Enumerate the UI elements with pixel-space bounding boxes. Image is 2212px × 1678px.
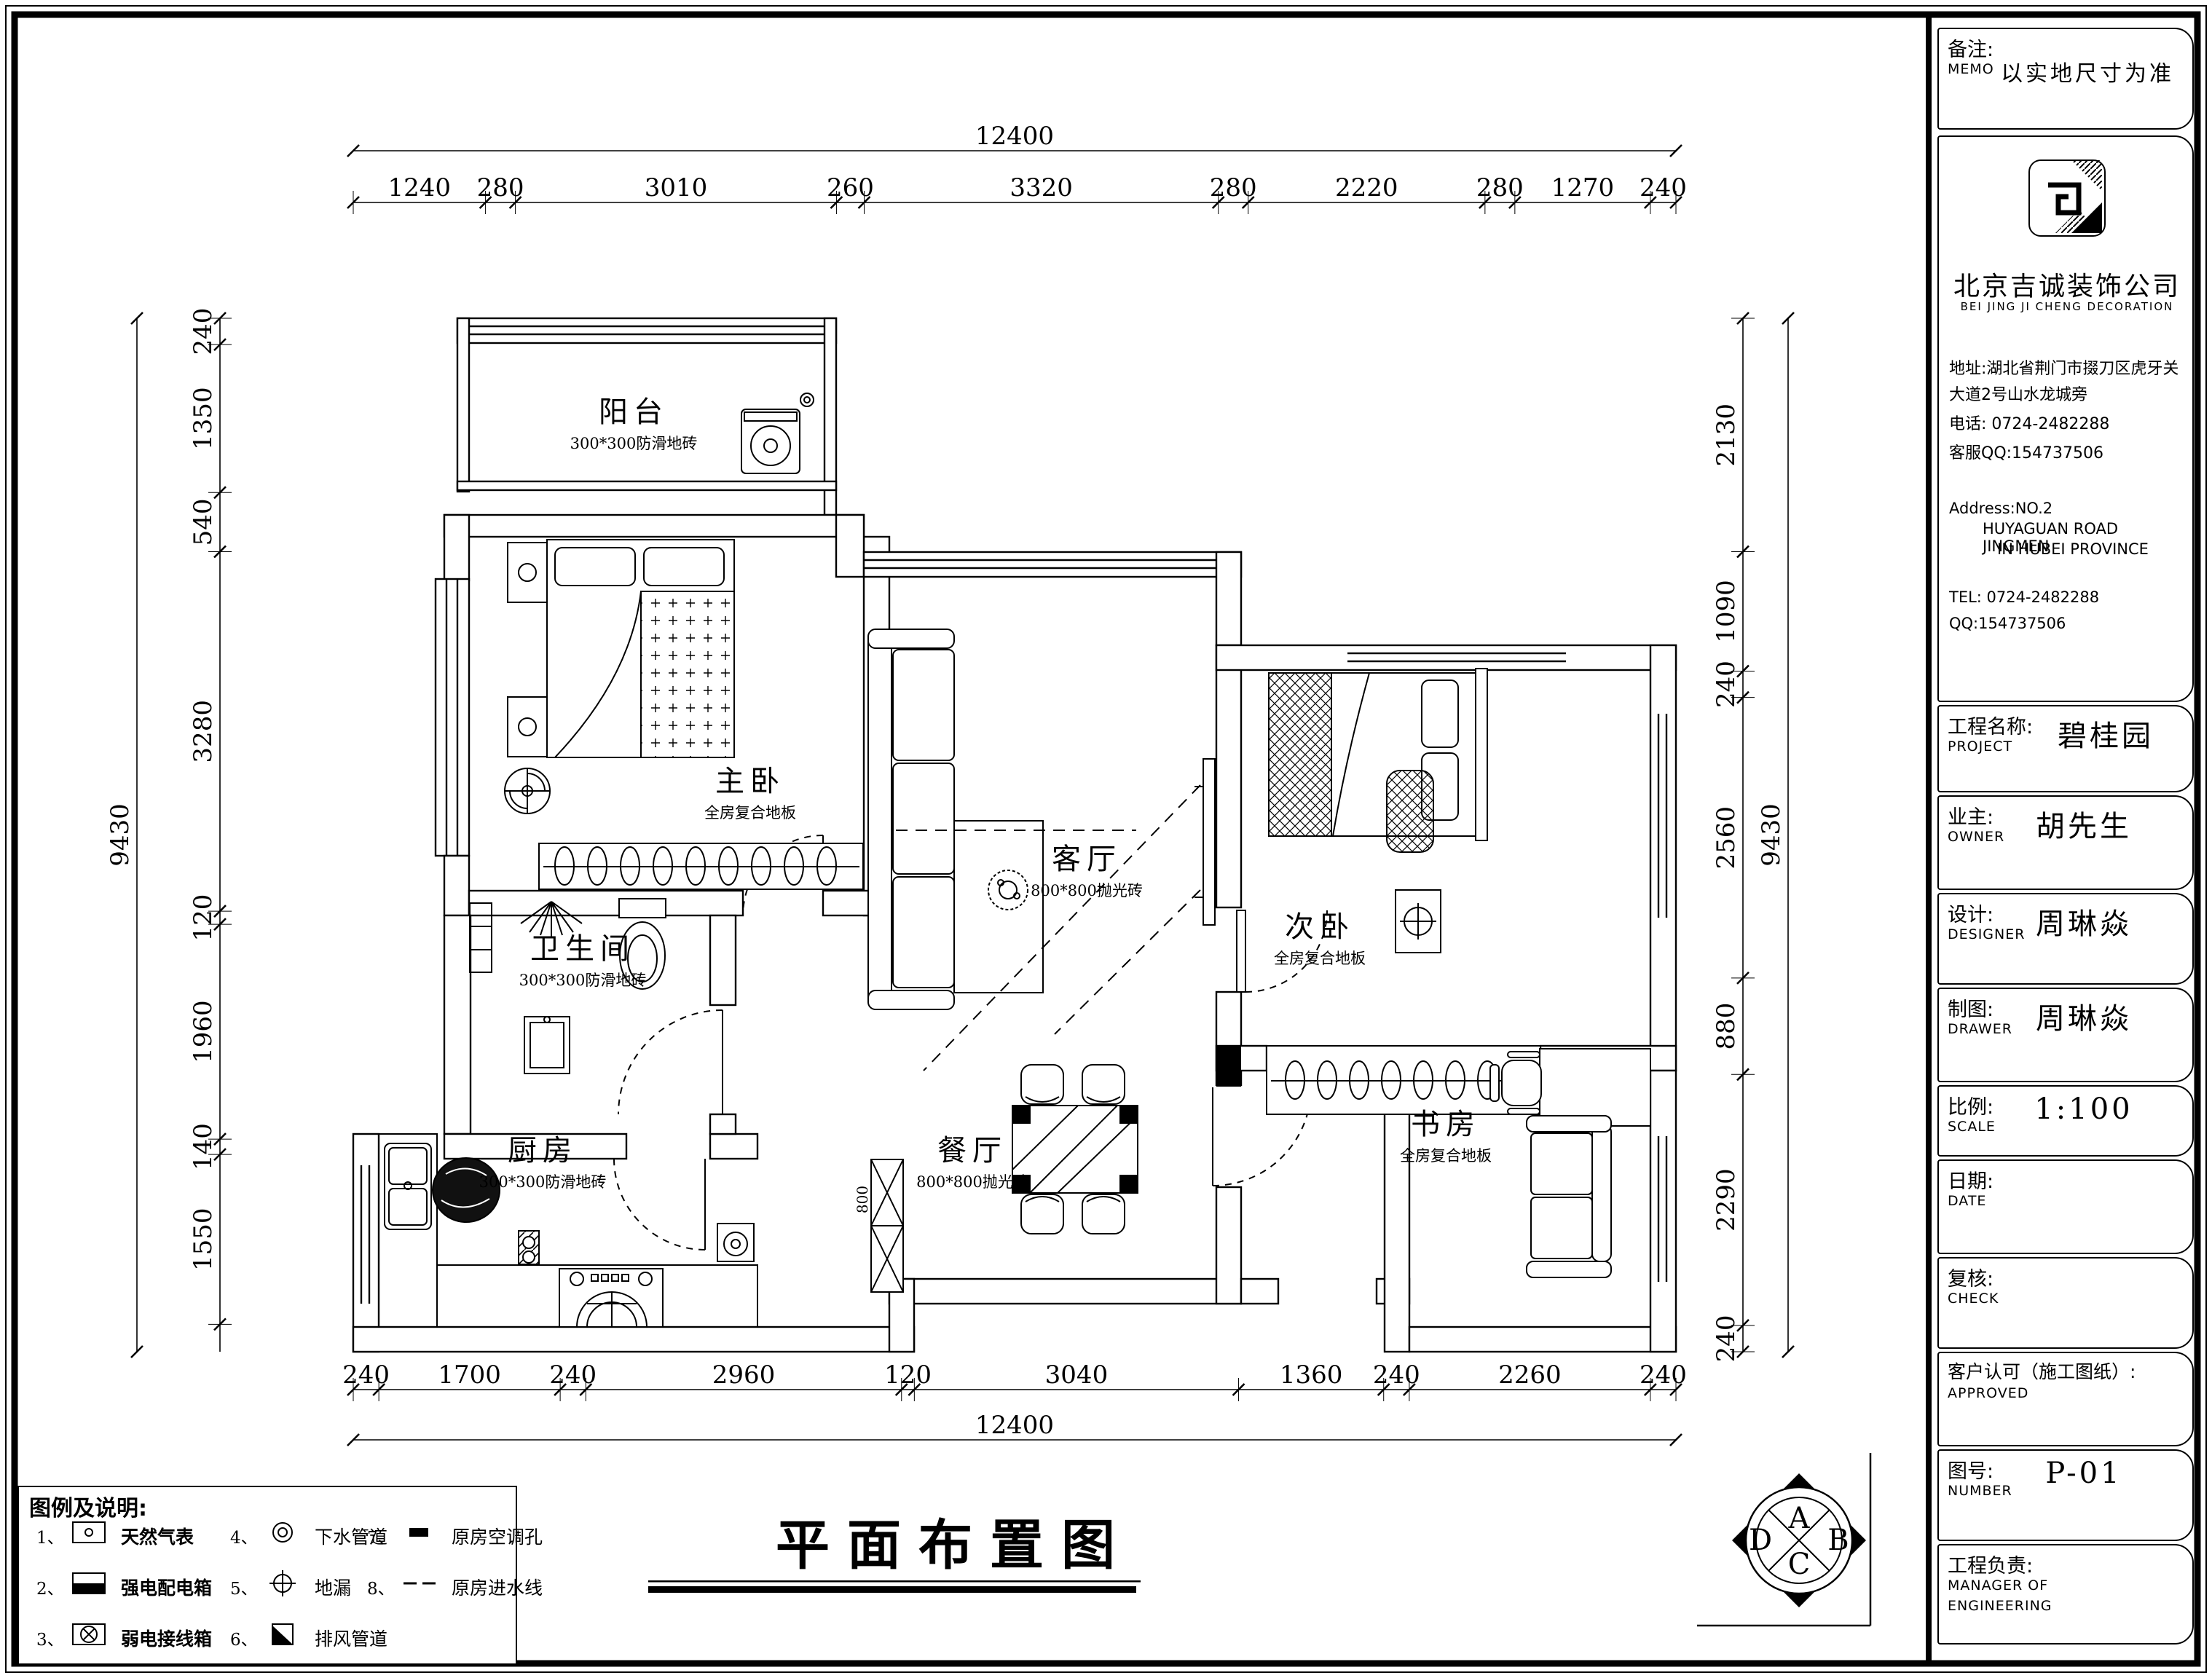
room-floor-note: 300*300防滑地砖 bbox=[519, 969, 647, 990]
drawer-box: 制图: DRAWER 周琳焱 bbox=[1937, 988, 2194, 1082]
company-address-1: 地址:湖北省荆门市掇刀区虎牙关 bbox=[1949, 355, 2185, 379]
scale-box: 比例: SCALE 1:100 bbox=[1937, 1085, 2194, 1157]
company-name-en: BEI JING JI CHENG DECORATION bbox=[1949, 300, 2185, 313]
dining-chair bbox=[1021, 1194, 1063, 1234]
kitchen-sink bbox=[385, 1143, 431, 1229]
legend-item-label: 原房空调孔 bbox=[452, 1523, 543, 1549]
designer-value: 周琳焱 bbox=[1990, 900, 2178, 942]
scale-label: 比例: bbox=[1948, 1091, 1993, 1119]
appliance bbox=[717, 1224, 754, 1261]
legend-item-number: 1、 bbox=[36, 1524, 64, 1548]
company-tel-en: TEL: 0724-2482288 bbox=[1949, 588, 2185, 606]
weak-current-box-icon bbox=[68, 1621, 109, 1650]
dim-label: 120 bbox=[884, 1360, 932, 1390]
legend-item-number: 7、 bbox=[367, 1524, 395, 1548]
legend-item-number: 3、 bbox=[36, 1626, 64, 1650]
dim-label: 2960 bbox=[712, 1360, 776, 1390]
compass-letter-b: B bbox=[1827, 1524, 1849, 1557]
room-label-bathroom: 卫生间 300*300防滑地砖 bbox=[519, 925, 647, 990]
drawer-label: 制图: bbox=[1948, 993, 1993, 1022]
number-box: 图号: NUMBER P-01 bbox=[1937, 1449, 2194, 1541]
potted-plant bbox=[988, 870, 1028, 910]
tv-panel bbox=[1194, 759, 1215, 925]
exhaust-fan-symbol bbox=[505, 768, 550, 814]
dim-label: 880 bbox=[1712, 1003, 1741, 1050]
dim-label: 140 bbox=[189, 1123, 218, 1170]
memo-box: 备注: MEMO 以实地尺寸为准 bbox=[1937, 28, 2194, 130]
dim-label: 260 bbox=[827, 173, 874, 202]
drawing-title: 平面布置图 bbox=[728, 1502, 1180, 1580]
room-name: 厨房 bbox=[479, 1127, 607, 1169]
memo-label-en: MEMO bbox=[1948, 61, 1994, 77]
nightstand bbox=[508, 543, 547, 602]
owner-value: 胡先生 bbox=[1990, 803, 2178, 845]
legend-item-label: 排风管道 bbox=[315, 1625, 387, 1651]
title-underline bbox=[648, 1580, 1141, 1593]
dim-label: 240 bbox=[1640, 173, 1687, 202]
room-label-dining: 餐厅 800*800抛光砖 bbox=[916, 1127, 1028, 1192]
exhaust-duct-icon bbox=[262, 1621, 303, 1650]
dim-label: 2560 bbox=[1712, 806, 1741, 870]
manager-label-en2: ENGINEERING bbox=[1948, 1598, 2052, 1614]
number-label: 图号: bbox=[1948, 1455, 1993, 1484]
manager-label: 工程负责: bbox=[1948, 1550, 2033, 1578]
approved-box: 客户认可（施工图纸）: APPROVED bbox=[1937, 1352, 2194, 1446]
memo-value: 以实地尺寸为准 bbox=[1997, 55, 2178, 87]
dining-chair bbox=[1082, 1194, 1125, 1234]
dim-label: 120 bbox=[189, 894, 218, 942]
floor-drain-icon bbox=[262, 1570, 303, 1599]
company-box: 北京吉诚装饰公司 BEI JING JI CHENG DECORATION 地址… bbox=[1937, 135, 2194, 702]
dim-label: 1270 bbox=[1551, 173, 1615, 202]
dim-label: 2260 bbox=[1498, 1360, 1562, 1390]
dim-label: 9430 bbox=[106, 803, 135, 867]
check-label: 复核: bbox=[1948, 1263, 1993, 1291]
check-label-en: CHECK bbox=[1948, 1291, 1999, 1307]
dining-table bbox=[1012, 1106, 1138, 1193]
legend-item-label: 原房进水线 bbox=[452, 1574, 543, 1600]
washing-machine bbox=[741, 409, 800, 473]
room-floor-note: 全房复合地板 bbox=[1274, 947, 1366, 969]
scale-label-en: SCALE bbox=[1948, 1119, 1996, 1135]
room-name: 阳台 bbox=[570, 388, 698, 430]
room-name: 卫生间 bbox=[519, 925, 647, 967]
owner-label: 业主: bbox=[1948, 801, 1993, 830]
manager-label-en: MANAGER OF bbox=[1948, 1577, 2048, 1594]
company-phone: 电话: 0724-2482288 bbox=[1949, 411, 2185, 434]
dim-label: 12400 bbox=[975, 1411, 1054, 1440]
company-logo-icon bbox=[2026, 157, 2108, 242]
number-value: P-01 bbox=[1990, 1457, 2178, 1490]
exhaust-duct-symbol bbox=[519, 1231, 539, 1264]
wardrobe bbox=[539, 843, 863, 889]
dim-label: 540 bbox=[189, 498, 218, 545]
company-name: 北京吉诚装饰公司 bbox=[1949, 265, 2185, 303]
nightstand bbox=[1396, 890, 1441, 953]
dim-label: 240 bbox=[1640, 1360, 1687, 1390]
room-label-kitchen: 厨房 300*300防滑地砖 bbox=[479, 1127, 607, 1192]
desk bbox=[1540, 1049, 1650, 1126]
legend-item-number: 5、 bbox=[230, 1575, 258, 1599]
legend-item-label: 地漏 bbox=[315, 1574, 351, 1600]
dim-label: 240 bbox=[549, 1360, 597, 1390]
room-floor-note: 300*300防滑地砖 bbox=[479, 1170, 607, 1192]
dim-label: 12400 bbox=[975, 122, 1054, 151]
legend-item-label: 天然气表 bbox=[121, 1523, 194, 1549]
second-bed bbox=[1269, 669, 1487, 840]
legend-item-number: 6、 bbox=[230, 1626, 258, 1650]
gas-stove bbox=[559, 1269, 663, 1327]
power-distribution-box-icon bbox=[68, 1570, 109, 1599]
dim-label: 9430 bbox=[1757, 803, 1786, 867]
bathroom-sink bbox=[524, 1017, 570, 1074]
company-qq: 客服QQ:154737506 bbox=[1949, 440, 2185, 463]
room-label-balcony: 阳台 300*300防滑地砖 bbox=[570, 388, 698, 454]
room-name: 书房 bbox=[1400, 1100, 1492, 1143]
dim-label: 280 bbox=[477, 173, 524, 202]
legend-item-number: 4、 bbox=[230, 1524, 258, 1548]
dim-label: 240 bbox=[1712, 1315, 1741, 1362]
dim-label: 240 bbox=[1373, 1360, 1420, 1390]
compass-letter-a: A bbox=[1789, 1502, 1810, 1535]
dim-label: 1700 bbox=[438, 1360, 501, 1390]
dim-label: 280 bbox=[1476, 173, 1524, 202]
room-floor-note: 全房复合地板 bbox=[1400, 1144, 1492, 1166]
owner-box: 业主: OWNER 胡先生 bbox=[1937, 795, 2194, 890]
project-label-en: PROJECT bbox=[1948, 738, 2012, 755]
dim-label: 280 bbox=[1210, 173, 1257, 202]
dim-label: 3280 bbox=[189, 700, 218, 763]
dim-label: 2290 bbox=[1712, 1168, 1741, 1232]
dim-label: 3040 bbox=[1045, 1360, 1109, 1390]
dining-chair bbox=[1021, 1065, 1063, 1104]
dim-label: 3320 bbox=[1009, 173, 1073, 202]
dim-label: 1960 bbox=[189, 1000, 218, 1063]
date-label: 日期: bbox=[1948, 1165, 1993, 1194]
approved-label: 客户认可（施工图纸）: bbox=[1948, 1358, 2136, 1384]
legend-item-label: 强电配电箱 bbox=[121, 1574, 212, 1600]
kitchen-door bbox=[614, 1159, 705, 1250]
project-label: 工程名称: bbox=[1948, 711, 2033, 739]
manager-box: 工程负责: MANAGER OF ENGINEERING bbox=[1937, 1544, 2194, 1644]
room-floor-note: 300*300防滑地砖 bbox=[570, 432, 698, 454]
check-box: 复核: CHECK bbox=[1937, 1257, 2194, 1349]
company-qq-en: QQ:154737506 bbox=[1949, 615, 2185, 632]
room-label-master: 主卧 全房复合地板 bbox=[704, 757, 796, 823]
room-label-study: 书房 全房复合地板 bbox=[1400, 1100, 1492, 1166]
dim-label: 3010 bbox=[645, 173, 708, 202]
room-floor-note: 800*800抛光砖 bbox=[916, 1170, 1028, 1192]
room-floor-note: 全房复合地板 bbox=[704, 801, 796, 823]
room-floor-note: 800*800抛光砖 bbox=[1031, 879, 1143, 901]
master-bed bbox=[547, 540, 734, 757]
approved-label-en: APPROVED bbox=[1948, 1385, 2028, 1401]
gas-meter-icon bbox=[68, 1519, 109, 1548]
designer-box: 设计: DESIGNER 周琳焱 bbox=[1937, 893, 2194, 985]
sofa bbox=[868, 629, 954, 1009]
designer-label: 设计: bbox=[1948, 899, 1993, 927]
memo-label: 备注: bbox=[1948, 34, 1993, 62]
nightstand bbox=[508, 697, 547, 757]
legend-item-number: 8、 bbox=[367, 1575, 395, 1599]
compass-letter-c: C bbox=[1788, 1548, 1811, 1581]
cabinet-width-note: 800 bbox=[854, 1186, 871, 1213]
study-sofa bbox=[1527, 1116, 1611, 1277]
dim-label: 240 bbox=[342, 1360, 390, 1390]
dim-label: 1090 bbox=[1712, 580, 1741, 643]
room-name: 主卧 bbox=[704, 757, 796, 800]
drain-pipe-icon bbox=[262, 1519, 303, 1548]
dining-chair bbox=[1082, 1065, 1125, 1104]
ac-hole-icon bbox=[399, 1519, 440, 1548]
bedside-rug bbox=[1387, 771, 1433, 852]
company-address-en-1: Address:NO.2 bbox=[1949, 500, 2185, 517]
dim-label: 2220 bbox=[1335, 173, 1398, 202]
date-box: 日期: DATE bbox=[1937, 1159, 2194, 1254]
room-label-second-bedroom: 次卧 全房复合地板 bbox=[1274, 903, 1366, 969]
dim-label: 1350 bbox=[189, 387, 218, 450]
date-label-en: DATE bbox=[1948, 1193, 1986, 1209]
drawer-value: 周琳焱 bbox=[1990, 995, 2178, 1037]
bathroom-door bbox=[618, 1010, 723, 1114]
legend-title: 图例及说明: bbox=[29, 1490, 147, 1522]
legend-box: 图例及说明: 1、天然气表2、强电配电箱3、弱电接线箱4、下水管道5、地漏6、排… bbox=[17, 1486, 517, 1665]
shoe-cabinet bbox=[871, 1159, 903, 1292]
scale-value: 1:100 bbox=[1990, 1092, 2178, 1126]
dim-label: 240 bbox=[189, 308, 218, 355]
legend-item-number: 2、 bbox=[36, 1575, 64, 1599]
compass-letter-d: D bbox=[1749, 1524, 1772, 1557]
room-label-living: 客厅 800*800抛光砖 bbox=[1031, 835, 1143, 901]
room-name: 次卧 bbox=[1274, 903, 1366, 945]
dim-label: 1240 bbox=[388, 173, 452, 202]
drain-pipe-symbol bbox=[800, 393, 814, 406]
room-name: 客厅 bbox=[1031, 835, 1143, 878]
dim-label: 240 bbox=[1712, 661, 1741, 708]
project-box: 工程名称: PROJECT 碧桂园 bbox=[1937, 705, 2194, 792]
water-line-icon bbox=[399, 1570, 440, 1599]
dim-label: 2130 bbox=[1712, 403, 1741, 467]
legend-item-label: 弱电接线箱 bbox=[121, 1625, 212, 1651]
company-address-2: 大道2号山水龙城旁 bbox=[1949, 382, 2185, 405]
dim-label: 1360 bbox=[1280, 1360, 1343, 1390]
company-address-en-3: IN HUBEI PROVINCE bbox=[1997, 540, 2185, 558]
dim-label: 1550 bbox=[189, 1208, 218, 1271]
room-name: 餐厅 bbox=[916, 1127, 1028, 1169]
project-value: 碧桂园 bbox=[2034, 712, 2178, 755]
